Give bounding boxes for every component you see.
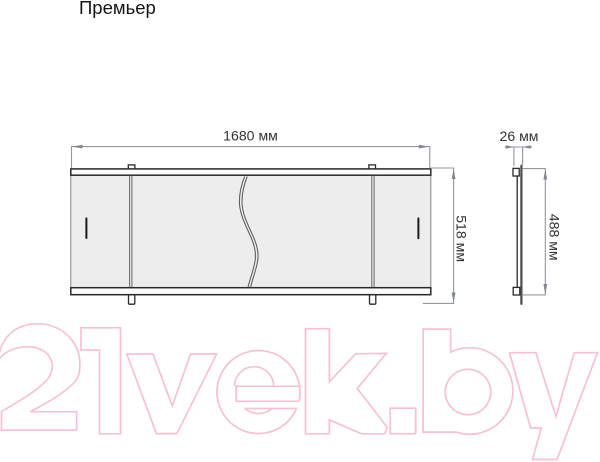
svg-text:518 мм: 518 мм: [453, 215, 469, 262]
svg-text:26 мм: 26 мм: [500, 128, 539, 144]
svg-text:488 мм: 488 мм: [546, 214, 562, 261]
svg-text:1680 мм: 1680 мм: [223, 128, 278, 144]
